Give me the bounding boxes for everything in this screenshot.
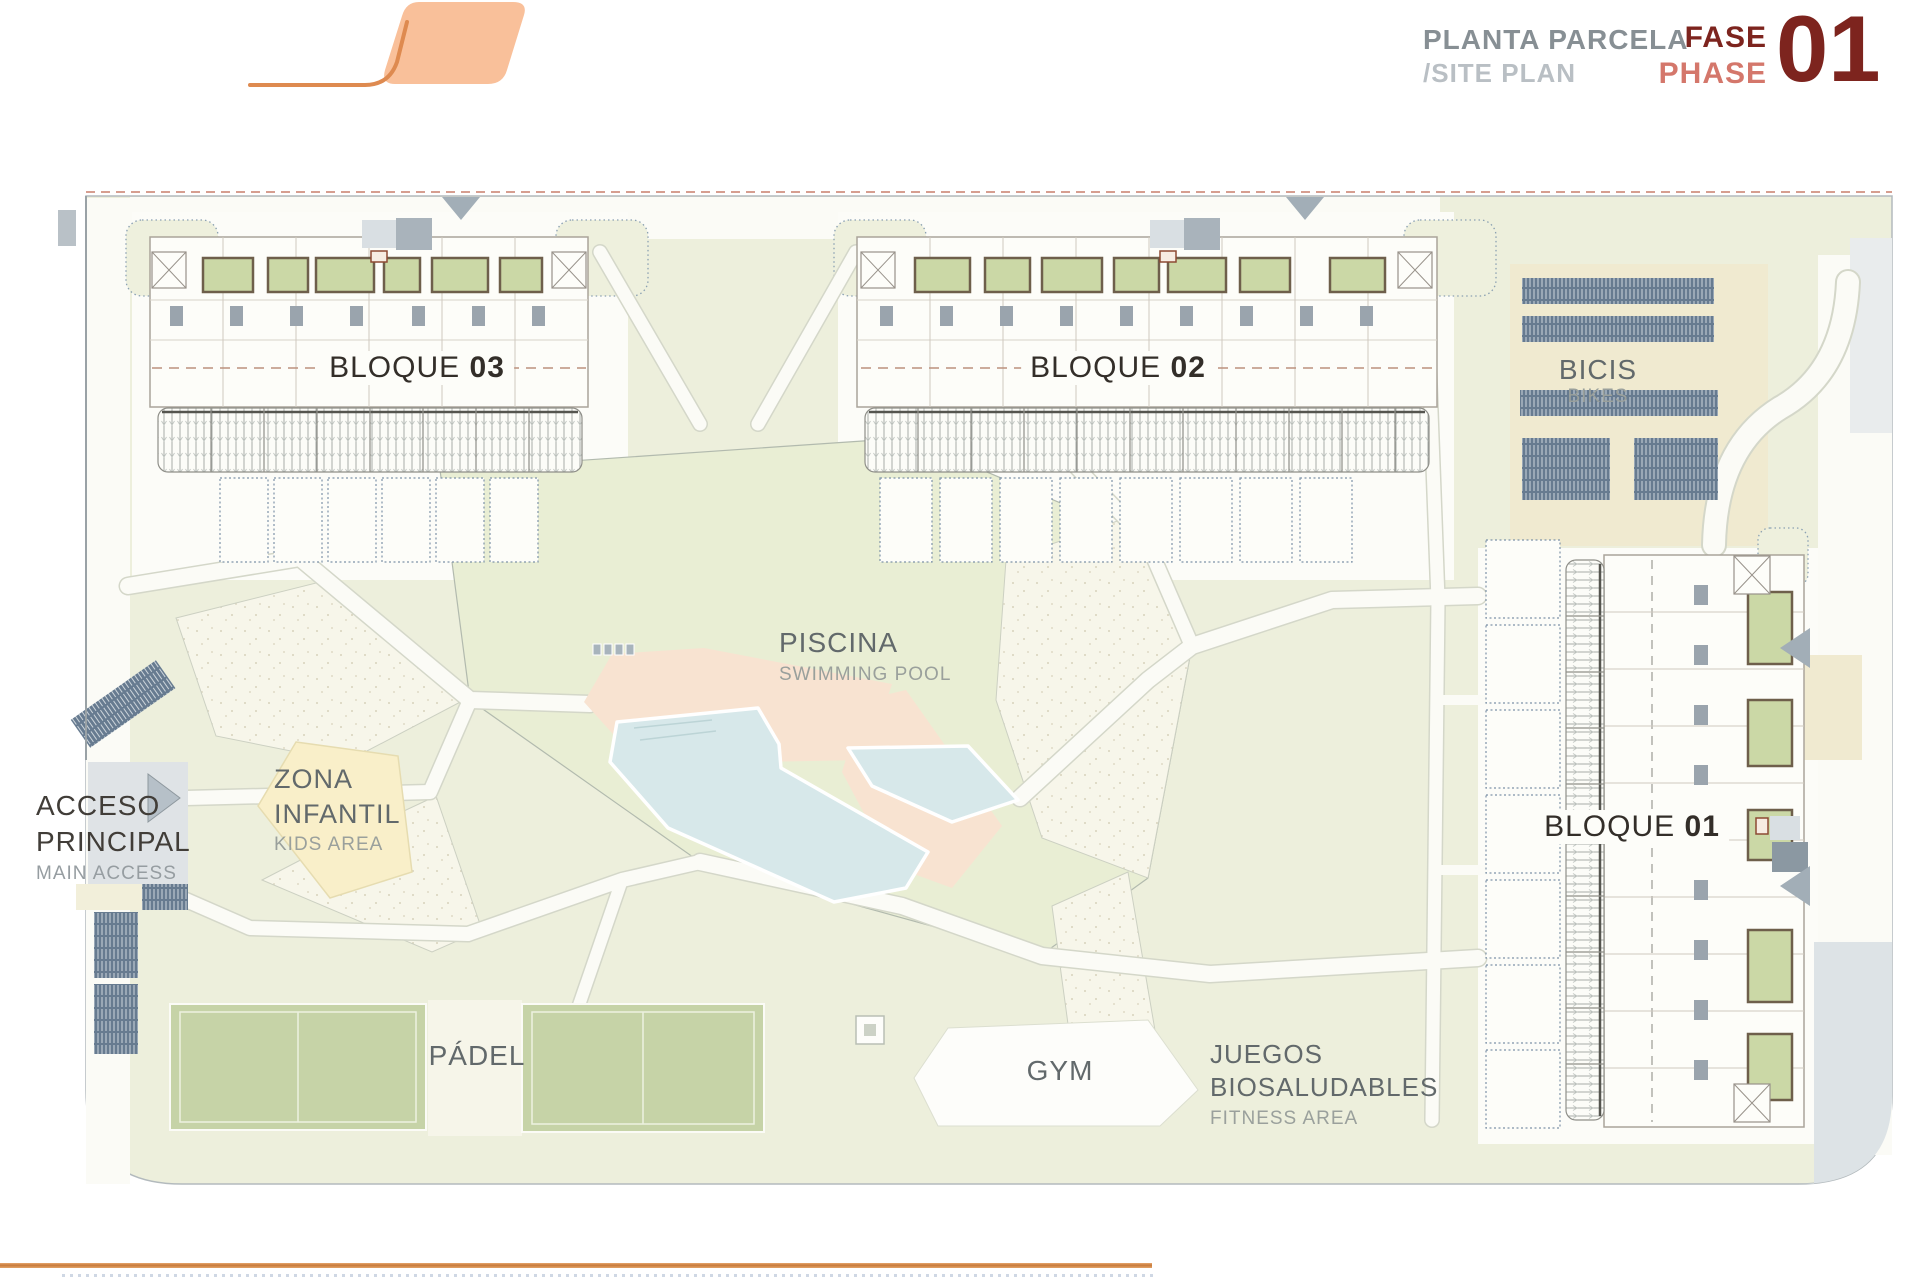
label-fitness: JUEGOS BIOSALUDABLES FITNESS AREA <box>1210 1038 1450 1130</box>
brand-logo <box>195 0 535 100</box>
phase-number: 01 <box>1776 6 1881 92</box>
fitness-label-en: FITNESS AREA <box>1210 1108 1450 1130</box>
logo-swoosh <box>250 22 407 85</box>
bloque-02-number: 02 <box>1171 351 1206 384</box>
site-plan-drawing <box>0 0 1920 1280</box>
signage-mark <box>371 251 387 262</box>
bloque-03-name: BLOQUE <box>329 351 460 384</box>
label-bloque-02: BLOQUE 02 <box>1021 351 1215 385</box>
label-bikes: BICIS BIKES <box>1559 352 1637 408</box>
phase-labels: FASE PHASE <box>1659 20 1767 92</box>
kids-label-en: KIDS AREA <box>274 834 414 856</box>
bikes-label-en: BIKES <box>1559 386 1637 408</box>
kids-label-es: ZONA INFANTIL <box>274 762 414 831</box>
phase-label-en: PHASE <box>1659 56 1767 92</box>
label-pool: PISCINA SWIMMING POOL <box>779 625 951 686</box>
pool-label-es: PISCINA <box>779 625 951 661</box>
phase-label-es: FASE <box>1659 20 1767 56</box>
logo-mark <box>384 2 525 84</box>
label-padel: PÁDEL <box>429 1038 526 1074</box>
title-es: PLANTA PARCELA <box>1423 22 1688 57</box>
title-en: /SITE PLAN <box>1423 57 1688 90</box>
bloque-01-name: BLOQUE <box>1544 810 1675 843</box>
entrance-canopy <box>1150 220 1184 248</box>
signage-mark <box>1160 251 1176 262</box>
entrance-canopy <box>362 220 396 248</box>
label-kids: ZONA INFANTIL KIDS AREA <box>274 762 414 856</box>
pool-label-en: SWIMMING POOL <box>779 664 951 686</box>
bottom-accent-rule <box>0 1263 1152 1268</box>
access-label-es: ACCESO PRINCIPAL <box>36 788 201 860</box>
bottom-cropped-text <box>62 1274 1154 1277</box>
signage-mark <box>1756 818 1768 834</box>
bloque-01-number: 01 <box>1685 810 1720 843</box>
bloque-02-name: BLOQUE <box>1030 351 1161 384</box>
entrance-canopy <box>1770 816 1800 840</box>
site-plan-page: PLANTA PARCELA /SITE PLAN FASE PHASE 01 … <box>0 0 1920 1280</box>
label-main-access: ACCESO PRINCIPAL MAIN ACCESS <box>36 788 201 885</box>
label-bloque-01: BLOQUE 01 <box>1535 810 1729 844</box>
bloque-03-number: 03 <box>470 351 505 384</box>
page-title: PLANTA PARCELA /SITE PLAN <box>1423 22 1688 90</box>
access-label-en: MAIN ACCESS <box>36 863 201 885</box>
bikes-label-es: BICIS <box>1559 352 1637 388</box>
label-bloque-03: BLOQUE 03 <box>320 351 514 385</box>
label-gym: GYM <box>1027 1053 1094 1089</box>
fitness-label-es: JUEGOS BIOSALUDABLES <box>1210 1038 1450 1105</box>
